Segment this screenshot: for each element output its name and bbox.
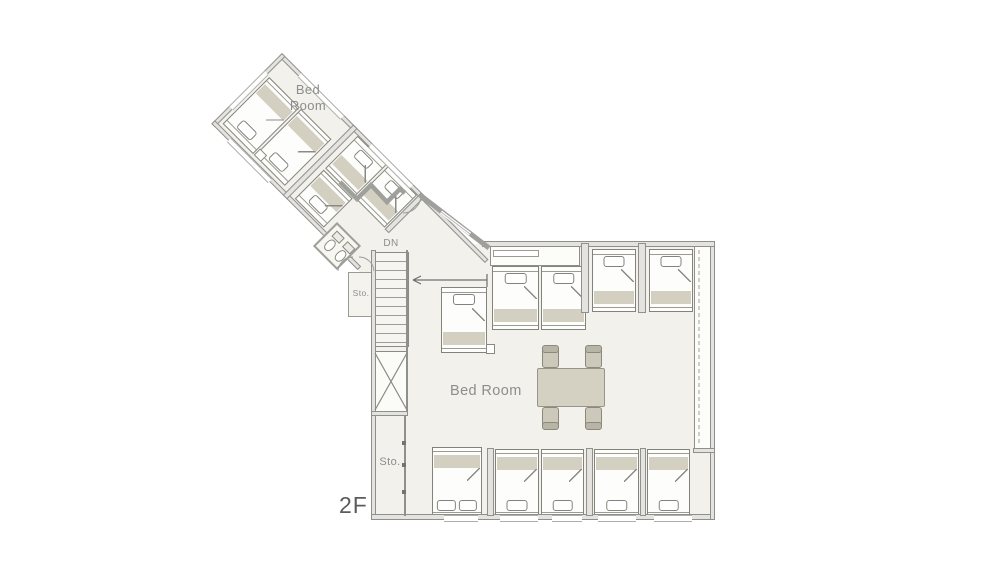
chair — [542, 346, 559, 368]
blanket-band — [594, 291, 634, 304]
footboard-line — [442, 348, 486, 349]
pillow — [661, 256, 682, 267]
single-bed — [441, 287, 487, 353]
bed-partition — [586, 448, 593, 516]
blanket-band — [497, 457, 537, 470]
headboard-line — [593, 254, 635, 255]
single-bed — [541, 266, 586, 330]
blanket-band — [543, 309, 584, 322]
stairs-down-label: DN — [371, 238, 411, 249]
top-closet — [490, 246, 580, 266]
wing-bedroom-label: Bed Room — [278, 82, 338, 114]
footboard-line — [593, 307, 635, 308]
top-closet-shelf — [493, 250, 539, 257]
pillow — [507, 500, 528, 511]
blanket-fold — [624, 469, 637, 482]
blanket-fold — [524, 286, 537, 299]
footboard-line — [595, 453, 638, 454]
blanket-fold — [678, 269, 691, 282]
stair-column-wall — [406, 250, 408, 415]
single-bed — [492, 266, 539, 330]
headboard-line — [433, 512, 481, 513]
window — [500, 515, 538, 522]
blanket-fold — [569, 469, 582, 482]
headboard-line — [542, 271, 585, 272]
blanket-band — [649, 457, 688, 470]
top-wall — [482, 241, 715, 247]
bed-partition — [581, 243, 589, 313]
floor-level-label: 2F — [339, 492, 368, 519]
headboard-line — [650, 254, 692, 255]
single-bed — [592, 249, 636, 312]
window — [552, 515, 582, 522]
headboard-line — [595, 512, 638, 513]
small-storage-label: Sto. — [346, 288, 376, 298]
chair-back — [542, 345, 559, 353]
pillow — [552, 500, 573, 511]
blanket-fold — [467, 468, 480, 481]
footboard-line — [650, 307, 692, 308]
headboard-line — [648, 512, 689, 513]
blanket-fold — [472, 308, 485, 321]
chair-back — [585, 345, 602, 353]
chair — [542, 407, 559, 429]
footboard-line — [542, 325, 585, 326]
shaft-storage-divider — [371, 411, 408, 416]
chair-back — [542, 422, 559, 430]
floor-plan-canvas: Bed Room DN Sto. Sto. Bed Room 2F — [0, 0, 1000, 563]
pillow — [604, 256, 625, 267]
right-closet-cap-wall — [693, 448, 715, 453]
headboard-line — [496, 512, 538, 513]
double-bed — [432, 447, 482, 518]
blanket-fold — [675, 469, 688, 482]
pillow — [458, 500, 476, 511]
storage-label: Sto. — [372, 456, 408, 468]
main-bedroom-label: Bed Room — [450, 383, 560, 399]
pillow — [553, 273, 575, 284]
chair — [585, 407, 602, 429]
footboard-line — [496, 453, 538, 454]
single-bed — [495, 449, 539, 518]
elevator-shaft — [373, 351, 408, 412]
single-bed — [647, 449, 690, 518]
pillow — [606, 500, 628, 511]
window — [654, 515, 692, 522]
nightstand — [486, 344, 495, 354]
footboard-line — [433, 451, 481, 452]
pillow — [658, 500, 679, 511]
chair — [585, 346, 602, 368]
bed-partition — [487, 448, 494, 516]
blanket-band — [434, 455, 480, 468]
footboard-line — [648, 453, 689, 454]
headboard-line — [542, 512, 583, 513]
chair-back — [585, 422, 602, 430]
pillow — [504, 273, 527, 284]
blanket-fold — [621, 269, 634, 282]
footboard-line — [493, 325, 538, 326]
bed-partition — [640, 448, 646, 516]
window — [598, 515, 636, 522]
blanket-band — [596, 457, 637, 470]
right-wall — [710, 243, 715, 520]
blanket-band — [494, 309, 537, 322]
blanket-fold — [524, 469, 537, 482]
single-bed — [541, 449, 584, 518]
pillow — [267, 151, 289, 173]
pillow — [437, 500, 455, 511]
blanket-band — [443, 332, 485, 345]
footboard-line — [542, 453, 583, 454]
blanket-band — [543, 457, 582, 470]
window — [444, 515, 478, 522]
bed-partition — [638, 243, 646, 313]
pillow — [453, 294, 475, 305]
headboard-line — [442, 292, 486, 293]
single-bed — [594, 449, 639, 518]
staircase — [373, 252, 409, 347]
single-bed — [649, 249, 693, 312]
blanket-band — [651, 291, 691, 304]
headboard-line — [493, 271, 538, 272]
pillow — [236, 119, 258, 141]
